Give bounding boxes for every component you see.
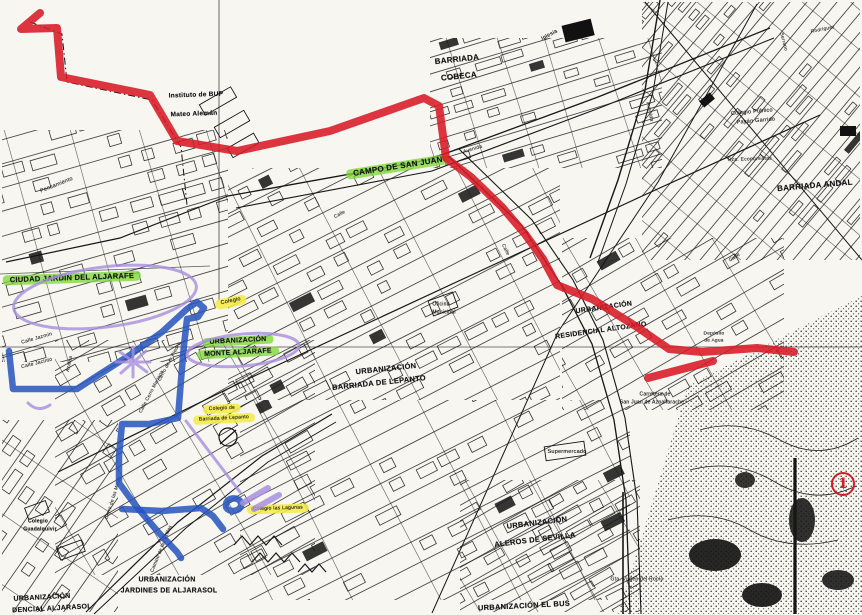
label-urb-altozano-line2: RESIDENCIAL ALTOZANO — [555, 321, 647, 341]
label-calle-1: Calle — [333, 210, 346, 220]
label-urb-aleros-line1: URBANIZACIÓN — [506, 515, 567, 530]
label-urb-lepanto-line2: BARRIADA DE LEPANTO — [332, 374, 427, 392]
scanned-street-map: Instituto de BUPMateo AlemánBARRIADACOBE… — [0, 0, 862, 615]
label-barriada-cobeca-line2: COBECA — [441, 71, 478, 83]
label-urb-monte-aljarafe-line2: MONTE ALJARAFE — [197, 346, 279, 360]
label-colegio-lepanto-line2: Barriada de Lepanto — [193, 413, 255, 425]
label-calle-3: Calle — [729, 253, 742, 264]
label-mateo-aleman: Mateo Alemán — [170, 111, 217, 119]
label-calle-jazmin: Calle Jazmín — [21, 332, 53, 346]
label-instituto-de-bup: Instituto de BUP — [169, 92, 224, 101]
label-serrano: Serrano — [778, 32, 788, 51]
label-urb-aleros-line2: ALEROS DE SEVILLA — [494, 531, 576, 549]
label-carretera-sja-line2: San Juan de Aznalfarache — [620, 400, 684, 405]
label-ciudad-jardin-del-aljarafe: CIUDAD JARDÍN DEL ALJARAFE — [3, 271, 142, 286]
label-oficina-municipal-line1: Oficina — [432, 302, 449, 307]
label-colegio-guadalquivir-line2: Guadalquivir — [23, 527, 57, 532]
label-azalea: Azalea — [66, 356, 74, 373]
label-colegio-monte: Colegio — [214, 294, 248, 310]
label-colegio-publico-line2: Payán Garrido — [736, 117, 775, 126]
label-cerro-mariana: Calle Cerro Mariana — [139, 370, 166, 414]
label-calle-jacinto: Calle Jacinto — [21, 358, 53, 371]
label-colegio-guadalquivir-line1: Colegio — [28, 519, 48, 524]
label-avenida-top: Avenida — [463, 145, 483, 156]
label-urb-residencial-line2: DENCIAL ALJARASOL — [12, 603, 92, 615]
label-carretera-sja-line1: Carretera de — [639, 392, 670, 397]
label-deposito-line2: de Agua — [704, 338, 723, 343]
label-pza-economistas: Pza. Economistas — [728, 157, 772, 164]
label-camino-erillas: Camino de las Erillas — [150, 525, 174, 574]
label-calle-2: Calle — [500, 243, 510, 256]
label-rodriguez: Rodríguez — [811, 25, 836, 35]
map-labels-layer: Instituto de BUPMateo AlemánBARRIADACOBE… — [0, 0, 862, 615]
label-deposito-line1: Depósito — [704, 331, 725, 336]
circled-number-annotation: 1 — [831, 472, 855, 496]
label-oficina-municipal-line2: Municipal — [432, 310, 455, 315]
label-urb-jardines-line2: JARDINES DE ALJARASOL — [121, 587, 218, 594]
label-campo-de-san-juan: CAMPO DE SAN JUAN — [346, 154, 451, 181]
label-barriada-andalucia: BARRIADA ANDAL — [777, 179, 853, 194]
label-cerro-de-las-minas: Cerro de las Minas — [105, 476, 124, 520]
label-urb-el-bus: URBANIZACIÓN EL BUS — [478, 600, 570, 613]
label-urb-monte-aljarafe-line1: URBANIZACIÓN — [202, 334, 273, 347]
label-colegio-las-lagunas: Colegio las Lagunas — [247, 503, 309, 514]
label-supermercado: Supermercado — [547, 450, 586, 456]
label-virgen-del-rocio: Gta. Virgen del Rocío — [611, 577, 664, 582]
label-urb-residencial-line1: URBANIZACIÓN — [13, 593, 70, 603]
label-pensamiento: Pensamiento — [40, 177, 74, 195]
label-barriada-cobeca-line1: BARRIADA — [434, 53, 479, 66]
label-avenida-right: Avenida — [644, 102, 653, 122]
label-iglesia: Iglesia — [541, 29, 559, 42]
label-urb-jardines-line1: URBANIZACIÓN — [138, 576, 195, 583]
label-urb-altozano-line1: URBANIZACIÓN — [575, 300, 633, 315]
